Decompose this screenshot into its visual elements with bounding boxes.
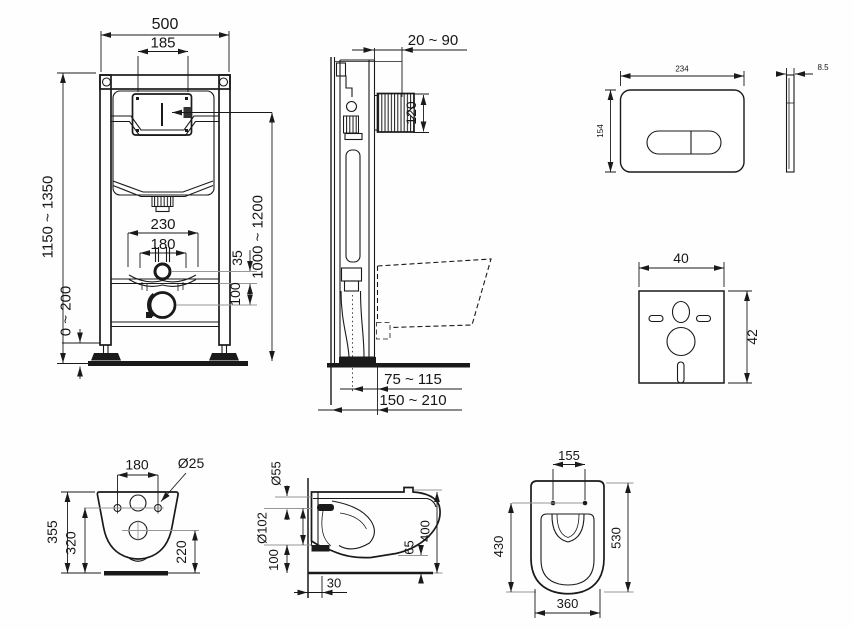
dashed-bowl-outline [377,259,492,339]
dim-bowl-inner-length: 430 [491,536,506,558]
floor-line-side [327,363,470,368]
dim-inner-span: 180 [150,236,175,253]
dim-offset-small: 35 [229,250,245,266]
dim-bowl-clearance: 65 [402,540,417,554]
dim-flush-diameter: Ø55 [269,461,284,486]
bowl-mount-bar [104,571,168,576]
bowl-top-dimensions: 155 430 530 360 [491,448,634,618]
dim-wall-distance: 20 ~ 90 [408,32,458,49]
mat-body [639,291,724,383]
dim-mat-height: 42 [744,329,760,345]
dim-flush-height-range: 1000 ~ 1200 [250,195,267,279]
drain-pipe-connection [146,293,175,319]
bowl-inner-rim [541,514,594,585]
frame-side-view: 20 ~ 90 120 75 ~ 115 150 ~ 210 [318,32,491,415]
floor-slab [88,361,248,366]
dim-plate-height: 154 [596,124,605,138]
dim-frame-height-range: 1150 ~ 1350 [40,176,57,259]
dim-drain-diameter: Ø102 [255,512,270,544]
dim-mat-width: 40 [673,250,689,266]
wall-line [331,57,335,405]
dim-bolt-diameter: Ø25 [178,455,205,471]
bowl-flush-hole [130,495,146,511]
dim-drain-center: 100 [266,549,281,571]
dim-offset-drain: 100 [227,282,243,306]
insulation-mat-view: 40 42 [639,250,760,383]
dim-frame-width: 500 [152,16,179,33]
bowl-rear-view: 180 Ø25 355 320 220 [44,455,204,576]
cistern-profile [346,150,360,262]
dim-bolt-spacing: 180 [125,457,149,473]
dim-bend-height: 120 [403,101,419,125]
dim-frame-opening: 185 [150,35,175,52]
hinge-dot-right [583,501,588,506]
dim-bowl-rear-height: 355 [44,520,60,544]
frame-front-view: 500 185 1000 ~ 1200 1150 ~ 1350 0 ~ 200 … [40,16,273,379]
bowl-side-dimensions: Ø55 Ø102 100 400 65 30 [255,461,443,598]
dim-bowl-drain-height: 220 [173,540,189,564]
dim-plate-thickness: 8.5 [817,63,829,72]
dim-bowl-offset: 30 [327,576,341,591]
inspection-box [111,94,220,136]
dim-bowl-mid-height: 320 [63,531,79,555]
dim-wall-range: 150 ~ 210 [379,392,446,409]
dim-bowl-height: 400 [418,520,433,542]
flush-plate-front-view: 234 154 [596,65,744,173]
flush-plate-side-view: 8.5 [776,63,829,172]
dim-front-range: 75 ~ 115 [384,371,442,388]
frame-feet [88,345,248,366]
technical-drawing-canvas: 500 185 1000 ~ 1200 1150 ~ 1350 0 ~ 200 … [0,0,853,630]
dim-pipe-span: 230 [150,216,175,233]
plate-profile [787,75,795,172]
dim-bowl-width: 360 [557,596,579,611]
dim-plate-width: 234 [675,65,689,74]
dim-floor-range: 0 ~ 200 [58,286,75,336]
bowl-top-view: 155 430 530 360 [491,448,634,618]
plate-thickness-dimension: 8.5 [776,63,829,80]
bowl-side-view: Ø55 Ø102 100 400 65 30 [255,461,443,598]
dim-bowl-length: 530 [609,527,624,549]
dim-hinge-spacing: 155 [558,448,580,463]
